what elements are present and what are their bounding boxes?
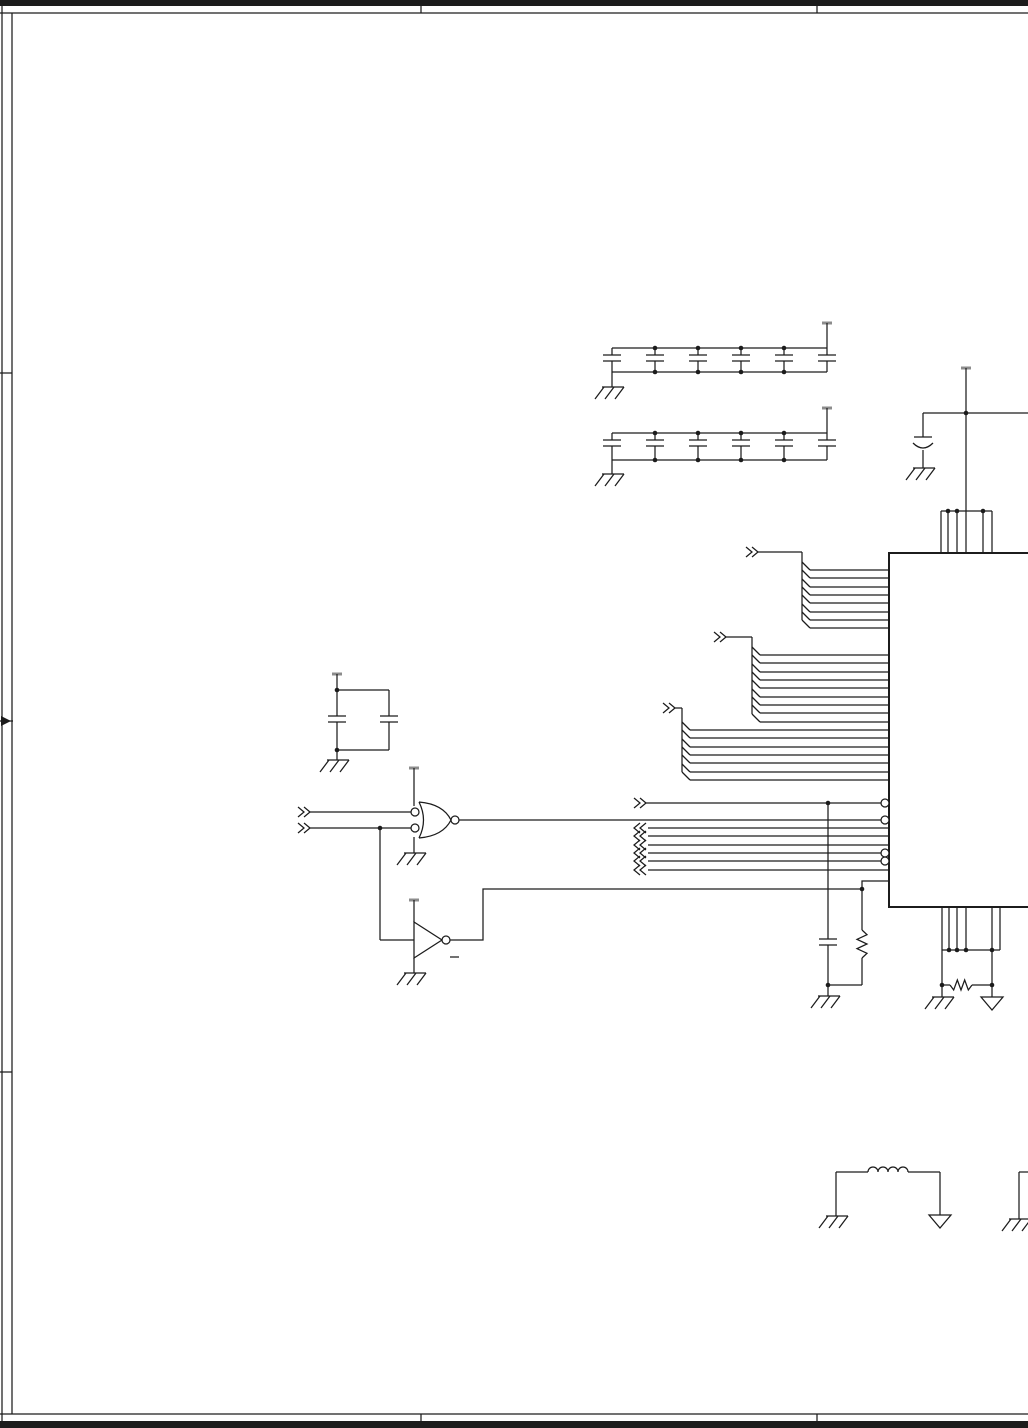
inverting-pin-bubble — [442, 936, 450, 944]
junction-dot — [981, 509, 986, 514]
inductor — [868, 1167, 908, 1172]
junction-dot — [947, 948, 952, 953]
junction-dot — [782, 370, 787, 375]
ground-icon — [1002, 1219, 1028, 1231]
junction-dot — [739, 458, 744, 463]
junction-dot — [782, 458, 787, 463]
junction-dot — [696, 370, 701, 375]
decoupling-cap-bank-2 — [603, 433, 836, 460]
inverting-pin-bubble — [451, 816, 459, 824]
junction-dot — [653, 431, 658, 436]
filter-capacitor — [819, 939, 837, 945]
bus-connector-icon — [298, 823, 310, 833]
address-bus-fan — [746, 547, 889, 628]
bulk-capacitor — [913, 437, 933, 448]
analog-ground-icon — [981, 997, 1003, 1010]
ground-icon — [811, 996, 840, 1008]
title-bar-top — [0, 0, 1028, 6]
power-pin-icon — [332, 674, 342, 690]
junction-dot — [782, 346, 787, 351]
junction-dot — [739, 370, 744, 375]
junction-dot — [696, 431, 701, 436]
schematic-canvas — [0, 0, 1028, 1428]
center-arrow-marker — [0, 716, 13, 726]
ic-ground-pins — [942, 907, 1000, 950]
inverting-pin-bubble — [411, 808, 419, 816]
ground-icon — [595, 387, 624, 399]
junction-dot — [696, 346, 701, 351]
junction-dot — [782, 431, 787, 436]
junction-dot — [955, 509, 960, 514]
inverting-pin-bubble — [881, 816, 889, 824]
data-bus-fan — [663, 703, 889, 780]
bus-connector-icon — [298, 807, 310, 817]
ground-icon — [819, 1216, 848, 1228]
address-bus-fan — [714, 632, 889, 722]
ic-body — [889, 553, 1028, 907]
bus-connector-icon — [634, 865, 646, 875]
junction-dot — [739, 431, 744, 436]
analog-ground-icon — [929, 1215, 951, 1228]
power-pin-icon — [409, 900, 419, 922]
junction-dot — [335, 688, 340, 693]
ground-icon — [906, 468, 935, 480]
inverter-output-wire — [450, 881, 889, 940]
bypass-cap-pair — [328, 690, 398, 750]
junction-dot — [964, 948, 969, 953]
bus-connector-icon — [634, 798, 646, 808]
inverting-pin-bubble — [881, 857, 889, 865]
nor-gate — [419, 802, 451, 838]
junction-dot — [653, 458, 658, 463]
inverting-pin-bubble — [411, 824, 419, 832]
power-pin-icon — [822, 408, 832, 433]
decoupling-cap-bank-1 — [603, 348, 836, 372]
ground-icon — [925, 997, 954, 1009]
power-pin-icon — [961, 368, 971, 413]
junction-dot — [653, 370, 658, 375]
resistor — [857, 930, 867, 958]
resistor — [950, 980, 972, 990]
junction-dot — [696, 458, 701, 463]
ic-power-pins — [941, 511, 992, 553]
schematic-page — [0, 0, 1028, 1428]
junction-dot — [955, 948, 960, 953]
inverter — [414, 922, 442, 958]
title-bar-bottom — [0, 1421, 1028, 1428]
ground-icon — [397, 853, 426, 865]
inverting-pin-bubble — [881, 799, 889, 807]
ground-icon — [397, 973, 426, 985]
junction-dot — [739, 346, 744, 351]
ground-icon — [595, 474, 624, 486]
power-pin-icon — [822, 323, 832, 348]
junction-dot — [653, 346, 658, 351]
ground-icon — [320, 760, 349, 772]
power-pin-icon — [409, 768, 419, 806]
junction-dot — [946, 509, 951, 514]
inverting-pin-bubble — [881, 849, 889, 857]
